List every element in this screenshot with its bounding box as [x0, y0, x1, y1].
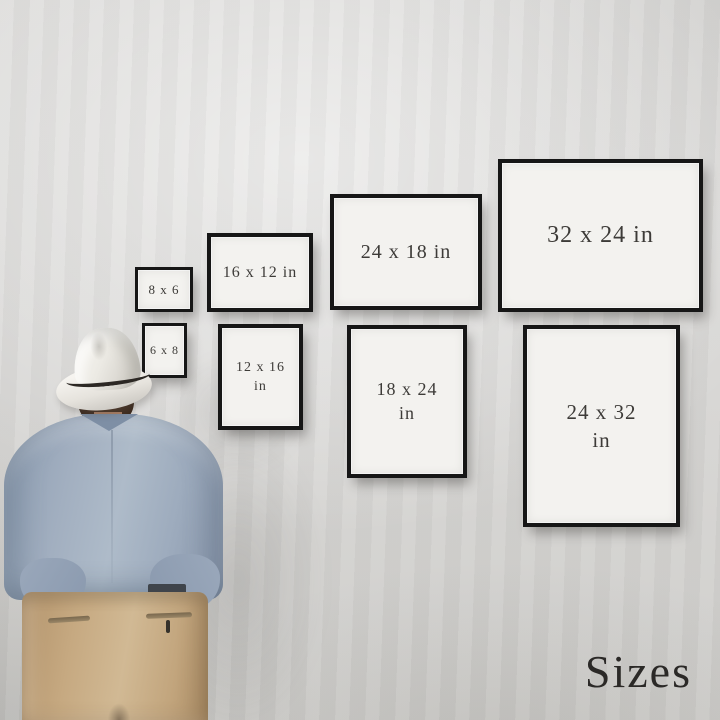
size-label: 32 x 24 in	[547, 222, 654, 249]
trouser-pocket-button	[166, 620, 170, 633]
frame-24x32: 24 x 32 in	[523, 325, 680, 527]
print-18x24: 18 x 24 in	[351, 329, 463, 474]
frame-24x18: 24 x 18 in	[330, 194, 482, 310]
trousers	[22, 592, 208, 720]
frame-16x12: 16 x 12 in	[207, 233, 313, 312]
print-24x18: 24 x 18 in	[334, 198, 478, 306]
frame-32x24: 32 x 24 in	[498, 159, 703, 312]
size-label: 12 x 16	[236, 360, 285, 376]
frame-18x24: 18 x 24 in	[347, 325, 467, 478]
print-32x24: 32 x 24 in	[502, 163, 699, 308]
print-16x12: 16 x 12 in	[211, 237, 309, 308]
size-label: 24 x 32	[567, 400, 637, 425]
sizes-wordmark: Sizes	[585, 645, 692, 698]
size-label: 8 x 6	[149, 282, 180, 298]
gallery-wall-scene: 8 x 6 16 x 12 in 24 x 18 in 32 x 24 in 6…	[0, 0, 720, 720]
person-figure	[0, 320, 240, 720]
print-8x6: 8 x 6	[138, 270, 190, 309]
size-label: 24 x 18 in	[361, 241, 452, 264]
frame-8x6: 8 x 6	[135, 267, 193, 312]
fedora-hat	[40, 320, 170, 420]
size-label: 16 x 12 in	[223, 264, 297, 282]
leg-gap-shadow	[104, 688, 134, 720]
print-24x32: 24 x 32 in	[527, 329, 676, 523]
trouser-pocket-left	[48, 616, 90, 624]
size-label-unit: in	[592, 428, 610, 453]
size-label: 18 x 24	[377, 379, 438, 400]
size-label-unit: in	[399, 403, 415, 424]
trouser-pocket-right	[146, 612, 192, 619]
size-label-unit: in	[254, 379, 267, 395]
